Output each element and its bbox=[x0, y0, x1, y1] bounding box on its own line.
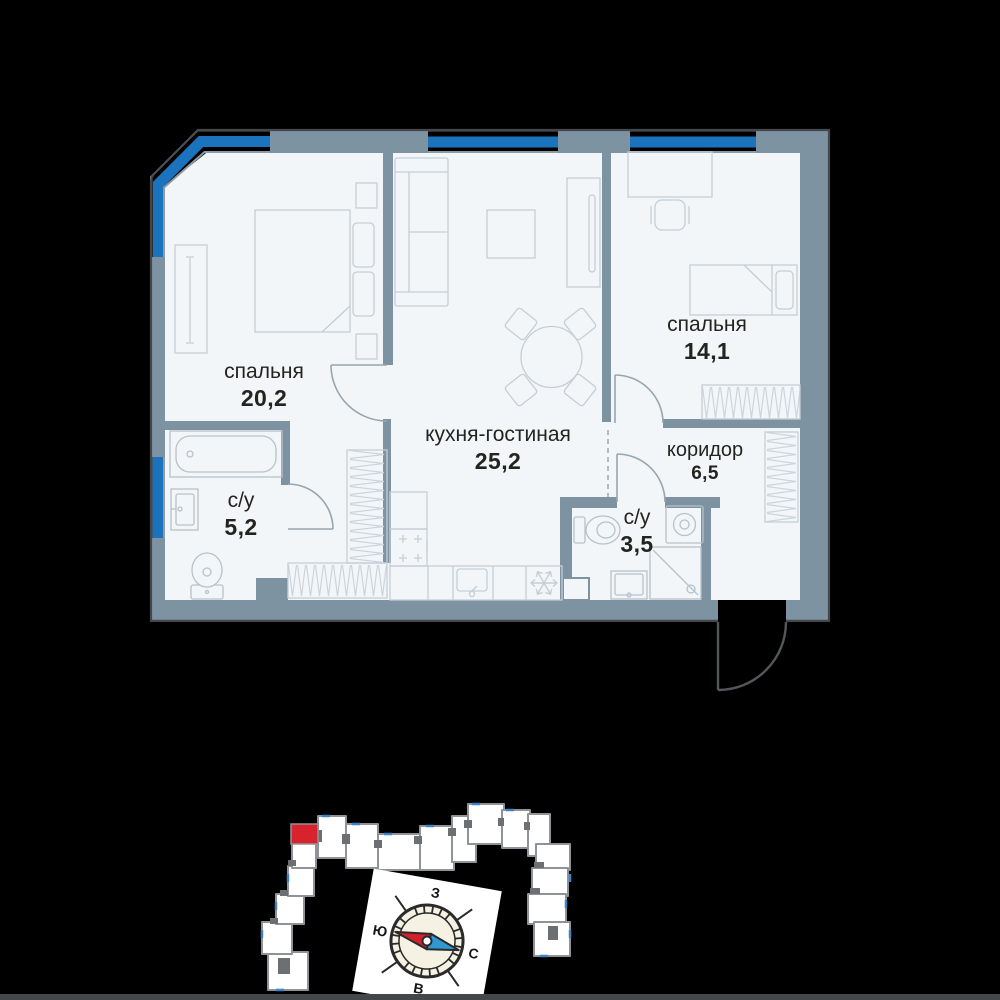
room-area: 6,5 bbox=[667, 463, 743, 485]
top-window-1-glass bbox=[428, 137, 558, 148]
room-name: с/у bbox=[620, 506, 653, 531]
room-area: 3,5 bbox=[620, 531, 653, 558]
bottom-edge-strip bbox=[0, 994, 1000, 1000]
floorplan-page: З Ю С В спальня 20,2 кухня-гостиная 25,2… bbox=[0, 0, 1000, 1000]
room-area: 25,2 bbox=[425, 448, 571, 475]
room-label-bedroom-1: спальня 20,2 bbox=[224, 360, 304, 412]
corridor-closet-hatch-icon bbox=[765, 432, 798, 522]
floorplan-canvas: З Ю С В bbox=[0, 0, 1000, 1000]
wardrobe-hatch-icon bbox=[702, 385, 800, 419]
room-area: 14,1 bbox=[667, 338, 747, 365]
room-area: 20,2 bbox=[224, 385, 304, 412]
highlighted-unit bbox=[291, 824, 318, 844]
left-window-glass bbox=[153, 457, 164, 538]
top-window-2-glass bbox=[630, 137, 756, 148]
room-label-bathroom-1: с/у 5,2 bbox=[224, 489, 257, 541]
room-name: спальня bbox=[224, 360, 304, 385]
closet-hatch-icon bbox=[288, 563, 387, 598]
room-area: 5,2 bbox=[224, 514, 257, 541]
room-name: коридор bbox=[667, 439, 743, 463]
closet-hatch-icon bbox=[347, 450, 387, 563]
compass-south-label: Ю bbox=[372, 922, 389, 940]
room-name: с/у bbox=[224, 489, 257, 514]
room-label-bathroom-2: с/у 3,5 bbox=[620, 506, 653, 558]
entrance-door-icon bbox=[718, 622, 786, 690]
room-label-corridor: коридор 6,5 bbox=[667, 439, 743, 485]
room-name: кухня-гостиная bbox=[425, 423, 571, 448]
room-label-bedroom-2: спальня 14,1 bbox=[667, 313, 747, 365]
room-name: спальня bbox=[667, 313, 747, 338]
compass-icon: З Ю С В bbox=[352, 869, 502, 1000]
site-plan: З Ю С В bbox=[262, 804, 570, 1000]
duct-niche bbox=[563, 578, 589, 600]
dining-table-icon bbox=[521, 327, 582, 388]
room-label-kitchen-living: кухня-гостиная 25,2 bbox=[425, 423, 571, 475]
